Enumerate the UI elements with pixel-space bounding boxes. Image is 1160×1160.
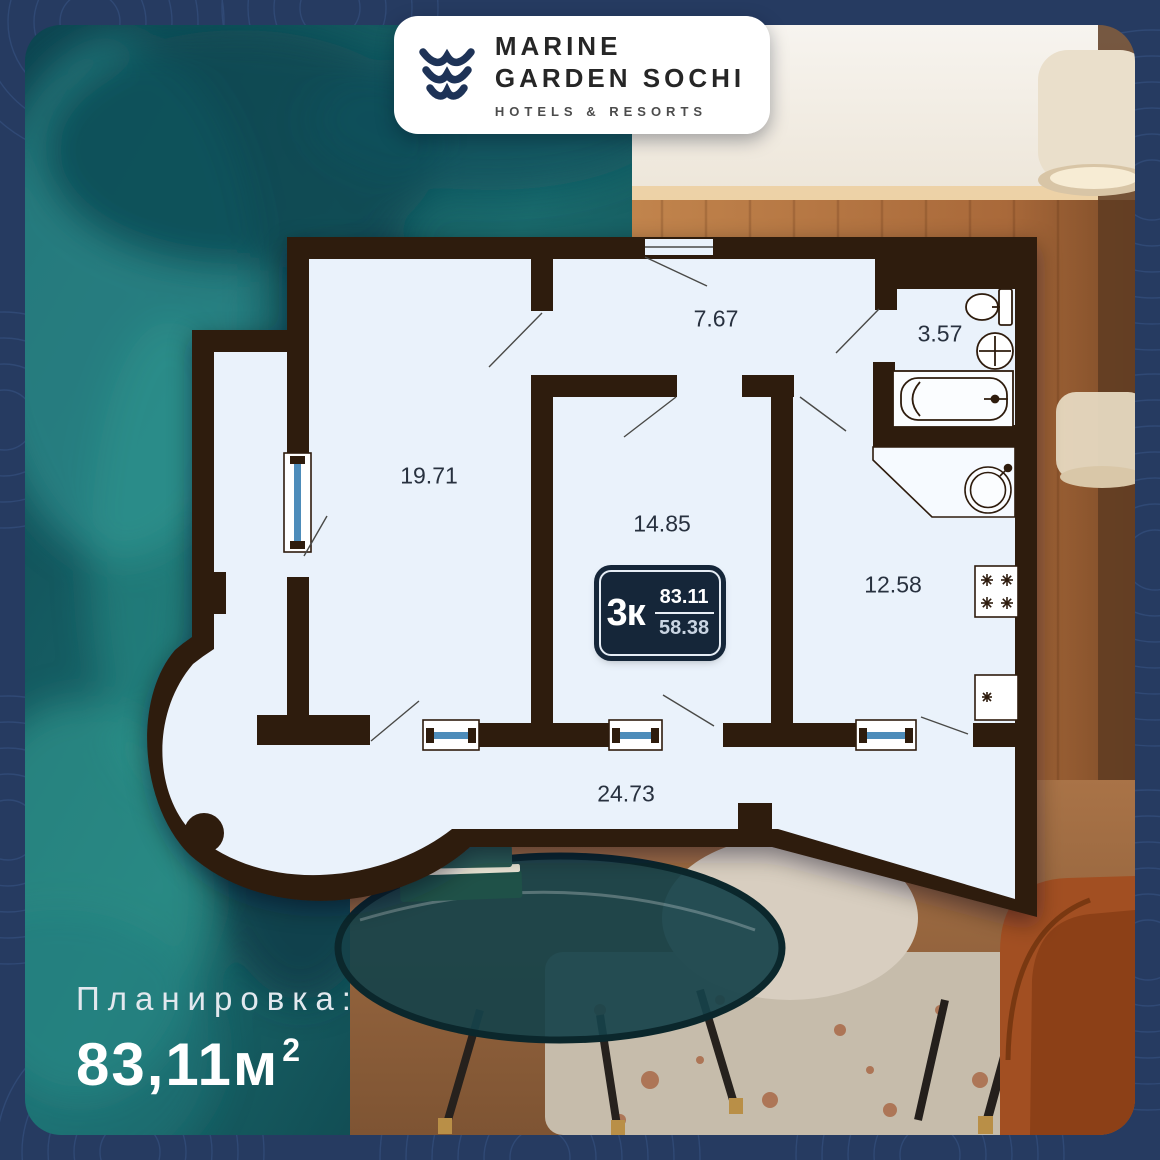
room-area-label: 12.58 bbox=[864, 572, 922, 599]
lamp-shade-small-icon bbox=[1056, 392, 1148, 490]
badge-area-fraction: 83.11 58.38 bbox=[655, 586, 714, 640]
badge-living-area: 58.38 bbox=[659, 614, 709, 640]
bathroom-sink-icon bbox=[977, 333, 1013, 369]
window-icon bbox=[423, 720, 479, 750]
footer-number: 83,11 bbox=[76, 1031, 233, 1098]
window-icon bbox=[284, 453, 311, 552]
bathtub-icon bbox=[893, 371, 1013, 427]
room-area-label: 14.85 bbox=[633, 511, 691, 538]
room-area-label: 19.71 bbox=[400, 463, 458, 490]
badge-rooms-label: 3к bbox=[606, 592, 644, 635]
brand-wave-icon bbox=[419, 40, 475, 110]
brand-text: MARINE GARDEN SOCHI HOTELS & RESORTS bbox=[495, 31, 745, 118]
lamp-shade-icon bbox=[1038, 50, 1150, 196]
appliance-icon bbox=[975, 675, 1018, 720]
room-area-label: 7.67 bbox=[694, 306, 739, 333]
social-card: MARINE GARDEN SOCHI HOTELS & RESORTS 7.6… bbox=[0, 0, 1160, 1160]
room-area-label: 3.57 bbox=[918, 321, 963, 348]
badge-total-area: 83.11 bbox=[655, 586, 714, 614]
window-icon bbox=[856, 720, 916, 750]
footer-unit: м bbox=[233, 1031, 279, 1098]
plan-badge: 3к 83.11 58.38 bbox=[599, 570, 721, 656]
footer-label: Планировка: bbox=[76, 980, 359, 1018]
window-icon bbox=[609, 720, 662, 750]
brand-line2: GARDEN SOCHI bbox=[495, 63, 745, 95]
footer: Планировка: 83,11м2 bbox=[76, 980, 359, 1099]
column-icon bbox=[184, 813, 224, 853]
room-area-label: 24.73 bbox=[597, 781, 655, 808]
brand-line1: MARINE bbox=[495, 31, 745, 63]
footer-area-value: 83,11м2 bbox=[76, 1030, 359, 1099]
brand-logo-card: MARINE GARDEN SOCHI HOTELS & RESORTS bbox=[394, 16, 770, 134]
brand-tagline: HOTELS & RESORTS bbox=[495, 104, 745, 119]
footer-superscript: 2 bbox=[282, 1032, 302, 1068]
stove-icon bbox=[975, 566, 1018, 617]
